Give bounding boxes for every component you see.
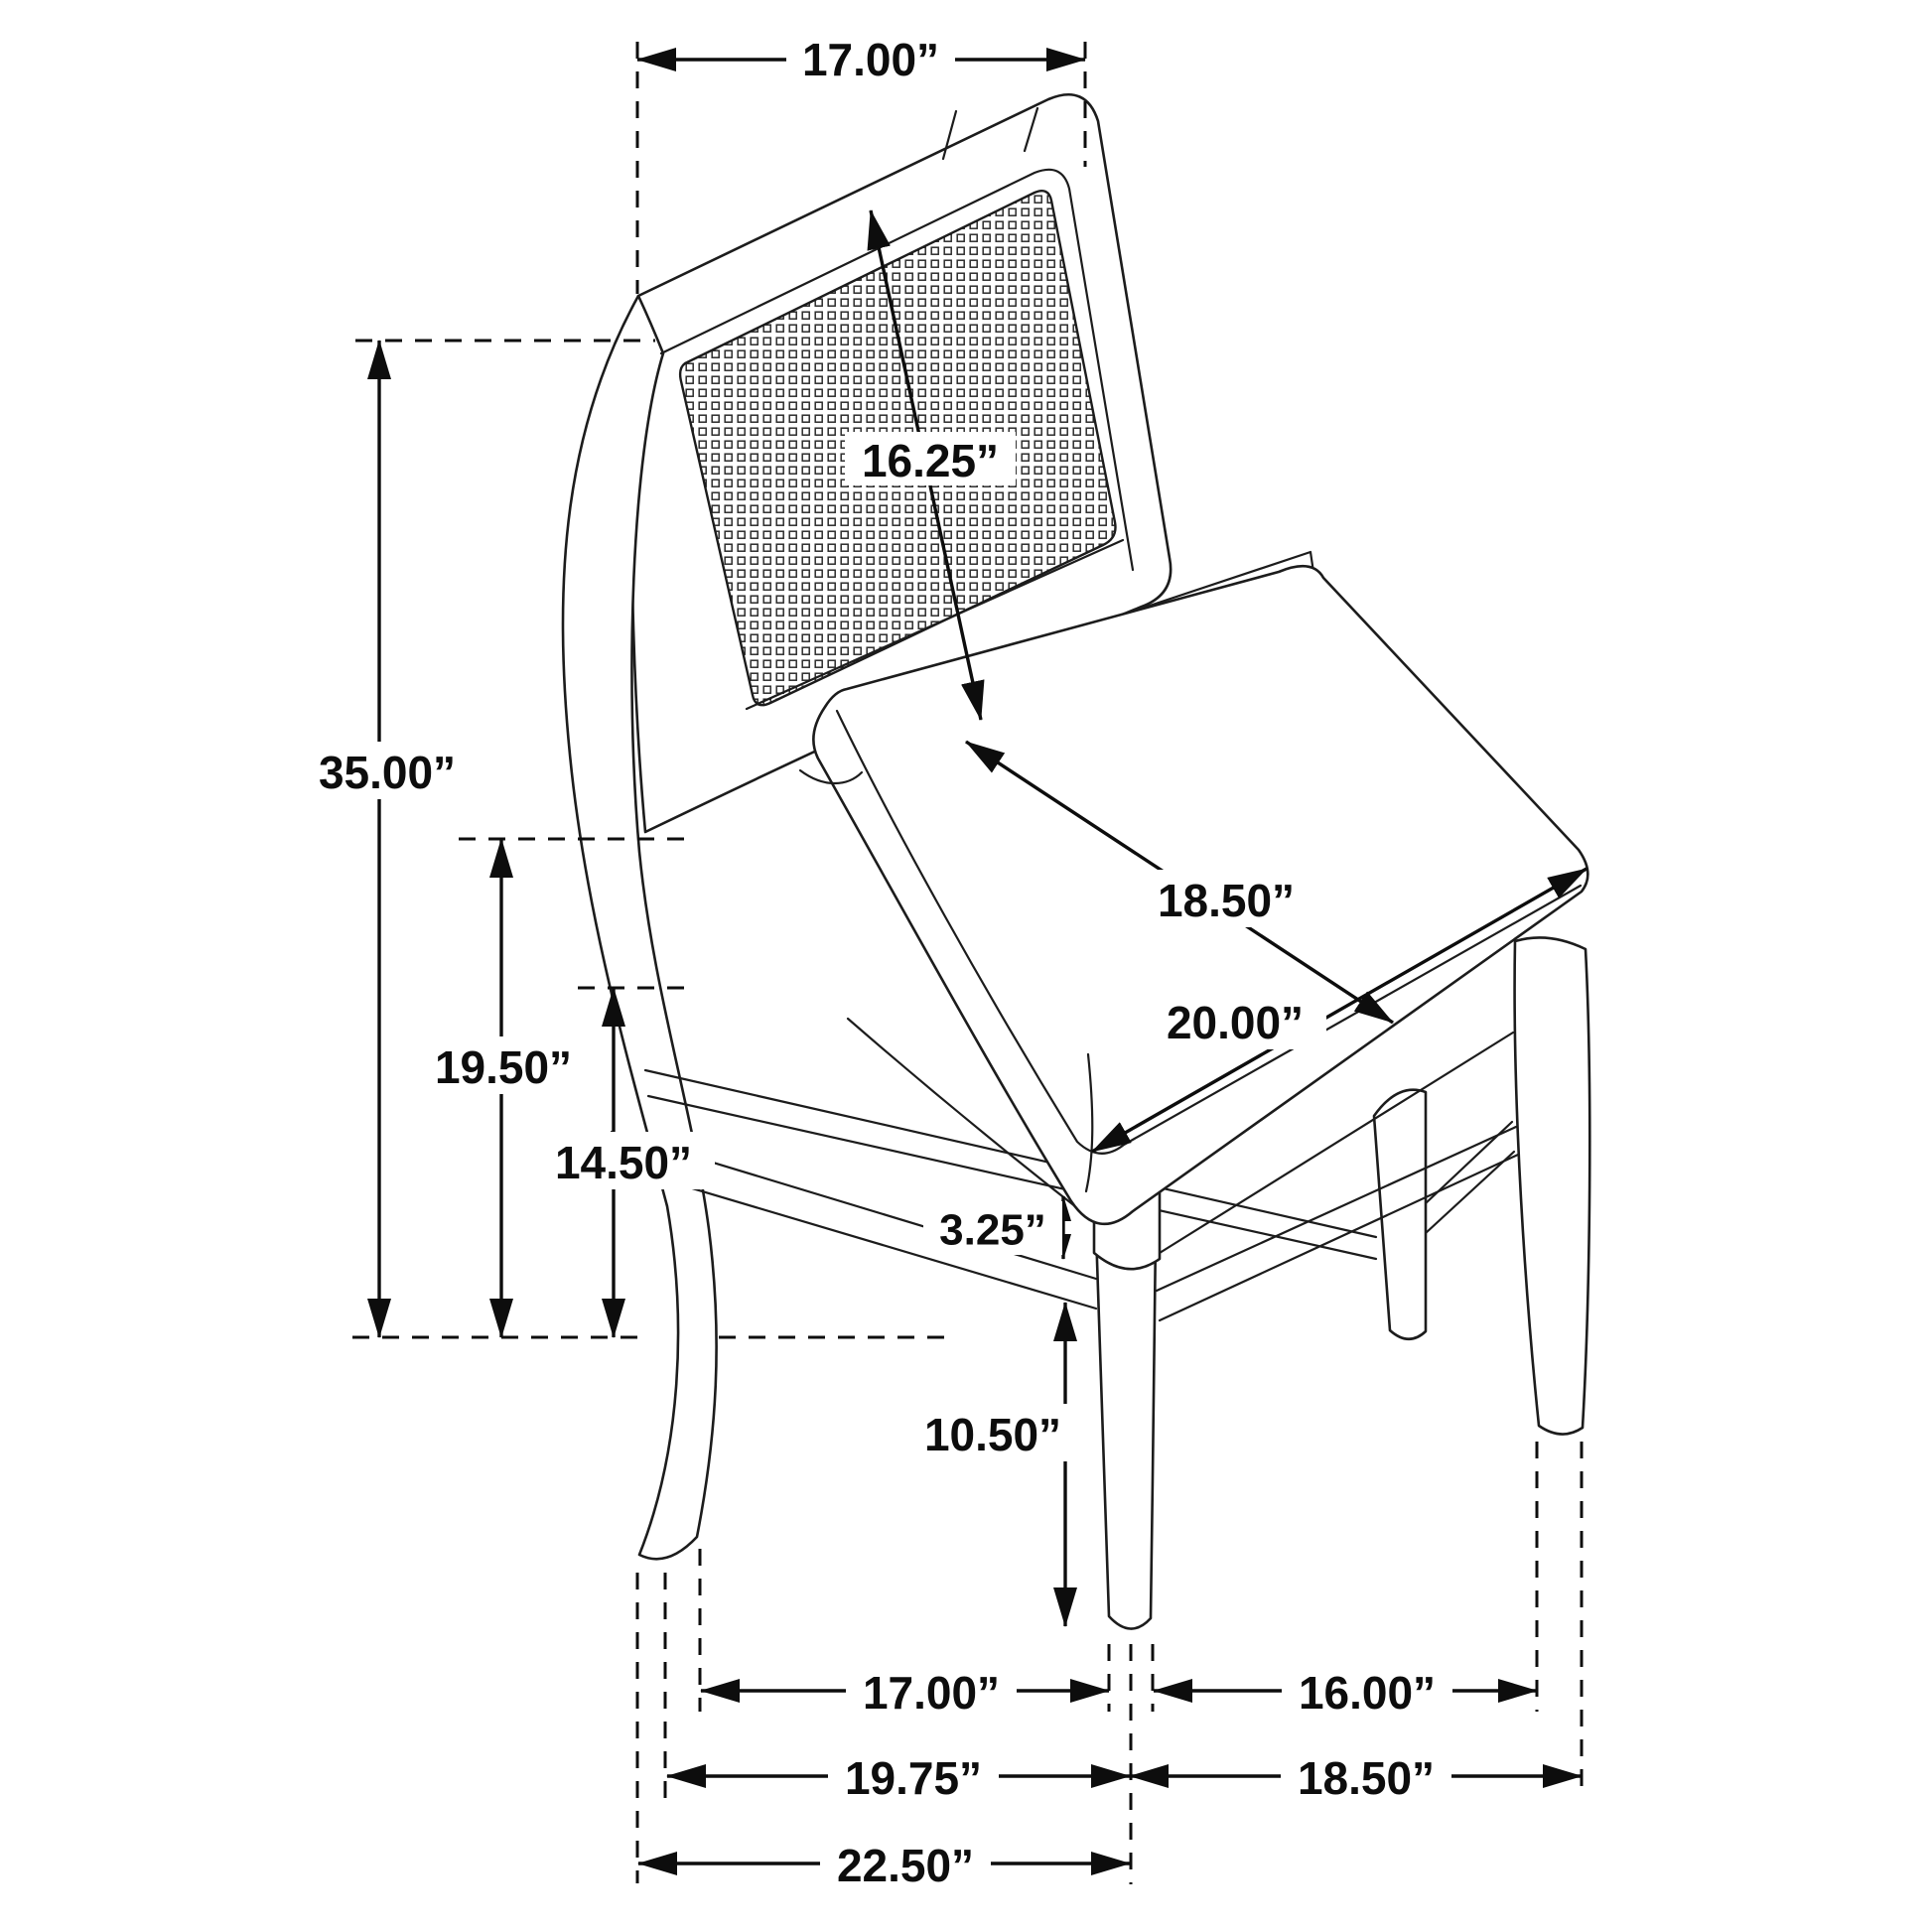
ext-front-leg (1109, 1644, 1153, 1884)
dim-label: 22.50” (837, 1840, 974, 1891)
label-back-top-width: 17.00” (786, 31, 955, 85)
right-leg (1515, 937, 1590, 1434)
label-front-width-at-floor: 19.75” (828, 1749, 999, 1804)
label-front-leg-height: 10.50” (905, 1404, 1080, 1461)
ext-left-foot (637, 1549, 700, 1883)
rear-right-leg (1374, 1090, 1426, 1339)
front-leg (1096, 1226, 1156, 1629)
label-floor-to-apron: 14.50” (532, 1132, 715, 1189)
dim-label: 10.50” (924, 1409, 1061, 1460)
dim-label: 17.00” (863, 1667, 1000, 1719)
ext-right-leg (1537, 1442, 1582, 1799)
dim-label: 19.50” (435, 1041, 572, 1093)
dim-label: 17.00” (802, 34, 939, 85)
label-floor-to-seat-top: 19.50” (412, 1036, 595, 1094)
dim-label: 16.25” (862, 435, 999, 486)
dim-label: 35.00” (319, 747, 456, 798)
label-side-depth-at-floor: 18.50” (1281, 1749, 1451, 1804)
chair-drawing (563, 94, 1589, 1628)
label-apron-height: 3.25” (923, 1201, 1062, 1255)
label-side-legs-inner-span: 16.00” (1282, 1664, 1452, 1719)
dim-label: 19.75” (845, 1752, 982, 1804)
dim-label: 18.50” (1158, 875, 1295, 926)
label-front-legs-inner-span: 17.00” (846, 1664, 1017, 1719)
label-back-panel-height: 16.25” (845, 432, 1016, 486)
dim-label: 14.50” (555, 1137, 692, 1188)
label-seat-depth: 18.50” (1135, 870, 1317, 927)
dim-label: 3.25” (939, 1206, 1046, 1255)
chair-dimension-diagram-page: 17.00” 16.25” 35.00” 19.50” 14.50” 18.50… (0, 0, 1932, 1932)
dim-label: 20.00” (1167, 997, 1304, 1048)
label-overall-height: 35.00” (296, 742, 479, 799)
dim-label: 18.50” (1298, 1752, 1435, 1804)
label-seat-width: 20.00” (1144, 992, 1326, 1049)
dim-label: 16.00” (1299, 1667, 1436, 1719)
label-overall-depth: 22.50” (820, 1837, 991, 1891)
chair-dimension-diagram: 17.00” 16.25” 35.00” 19.50” 14.50” 18.50… (0, 0, 1932, 1932)
